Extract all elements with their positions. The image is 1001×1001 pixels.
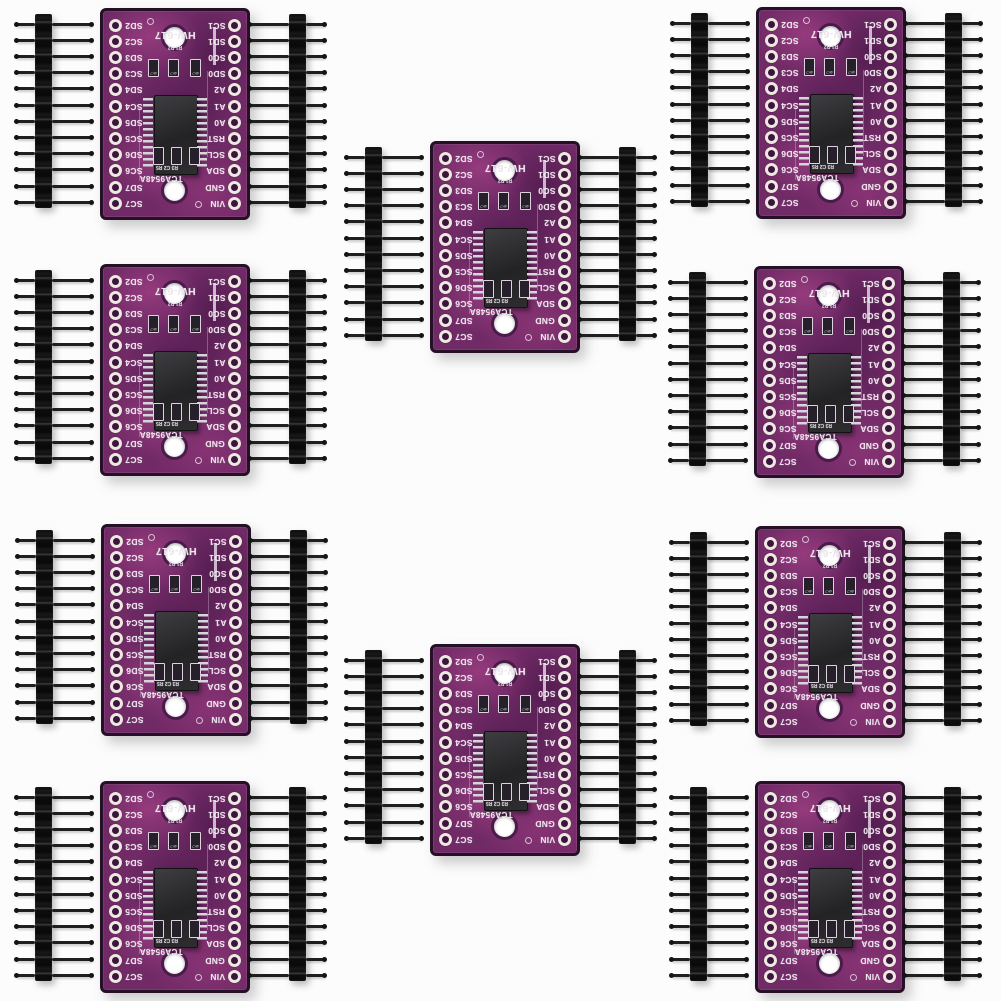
pin-label: GND <box>523 818 555 829</box>
header-pin <box>382 188 422 191</box>
header-pin <box>52 860 92 863</box>
header-pin <box>962 103 981 106</box>
through-hole-pad <box>228 339 241 352</box>
through-hole-pad <box>228 856 241 869</box>
pin-label-text: SD5 <box>126 633 143 644</box>
through-hole-pad <box>228 905 241 918</box>
header-pin <box>905 135 945 138</box>
pin-header-right <box>945 13 962 207</box>
pin-label: SD5 <box>455 753 487 764</box>
through-hole-pad <box>558 314 571 327</box>
through-hole-pad <box>229 713 242 726</box>
pin-label: GND <box>848 955 880 966</box>
pin-label: SD6 <box>780 667 812 678</box>
header-pin <box>579 659 619 662</box>
pin-label-text: SC7 <box>125 454 142 465</box>
pin-label: SC4 <box>126 617 158 628</box>
pin-label-text: SC2 <box>779 294 796 305</box>
pin-label-text: SC6 <box>126 681 143 692</box>
header-pin <box>17 652 36 655</box>
header-pin <box>962 22 981 25</box>
pin-label-text: RST <box>207 906 225 917</box>
pin-label: SD0 <box>848 586 880 597</box>
through-hole-pad <box>883 618 896 631</box>
passive-component <box>171 147 182 165</box>
through-hole-pad <box>883 970 896 983</box>
header-pin <box>250 652 290 655</box>
pin-label: SC7 <box>780 716 812 727</box>
pin-label: SC7 <box>125 971 157 982</box>
header-pin <box>707 686 747 689</box>
pin-label-text: SD2 <box>780 793 797 804</box>
header-pin <box>17 571 36 574</box>
header-pin <box>962 86 981 89</box>
through-hole-pad <box>884 180 897 193</box>
header-pin <box>962 184 981 187</box>
pin-label: SC3 <box>455 704 487 715</box>
pin-label: SC6 <box>125 165 157 176</box>
header-pin <box>249 408 289 411</box>
pin-label-text: SD5 <box>125 890 142 901</box>
through-hole-pad <box>763 341 776 354</box>
header-pin <box>16 392 35 395</box>
pin-label-text: RST <box>862 651 880 662</box>
pin-label: SD3 <box>455 688 487 699</box>
header-pin <box>708 38 748 41</box>
header-pin <box>670 329 689 332</box>
header-pin <box>962 167 981 170</box>
pin-label-text: SC4 <box>779 359 796 370</box>
pin-label-text: A1 <box>544 737 555 748</box>
pin-label: SC0 <box>847 310 879 321</box>
through-hole-pad <box>558 184 571 197</box>
header-pin <box>961 974 980 977</box>
pin-label: SD3 <box>455 185 487 196</box>
pin-label: A0 <box>523 250 555 261</box>
pin-label-text: SC7 <box>781 197 798 208</box>
pin-label: SD4 <box>455 217 487 228</box>
pin-label: SC6 <box>780 683 812 694</box>
pin-label-text: SCL <box>862 922 880 933</box>
pin-label-text: SDA <box>860 423 879 434</box>
through-hole-pad <box>763 293 776 306</box>
pin-label: SC7 <box>125 454 157 465</box>
pin-label: SCL <box>848 922 880 933</box>
header-pin <box>670 394 689 397</box>
pin-label-text: SD0 <box>863 586 880 597</box>
header-pin <box>961 622 980 625</box>
header-pin <box>579 156 619 159</box>
pin-label-text: SC1 <box>864 19 881 30</box>
pin-label: SD7 <box>780 955 812 966</box>
header-pin <box>249 152 289 155</box>
pin-label-text: SC1 <box>538 153 555 164</box>
through-hole-pad <box>882 390 895 403</box>
pin-label-text: SDA <box>206 938 225 949</box>
header-pin <box>636 772 655 775</box>
header-pin <box>903 459 943 462</box>
through-hole-pad <box>883 954 896 967</box>
through-hole-pad <box>110 632 123 645</box>
through-hole-pad <box>882 309 895 322</box>
header-pin <box>636 269 655 272</box>
pin-label: A2 <box>847 342 879 353</box>
pin-label-text: SD3 <box>780 570 797 581</box>
header-pin <box>671 844 690 847</box>
pin-label: SD2 <box>125 793 157 804</box>
pin-label: A0 <box>848 890 880 901</box>
header-pin <box>579 821 619 824</box>
through-hole-pad <box>439 168 452 181</box>
pin-label-text: VIN <box>865 971 880 982</box>
header-pin <box>53 571 93 574</box>
header-pin <box>708 103 748 106</box>
pin-label: SD1 <box>193 809 225 820</box>
pin-label: VIN <box>848 716 880 727</box>
pin-label: SD7 <box>125 182 157 193</box>
header-pin <box>17 620 36 623</box>
header-pin <box>346 804 365 807</box>
header-pin <box>52 87 92 90</box>
header-pin <box>706 459 746 462</box>
pin-label: SC7 <box>455 331 487 342</box>
header-pin <box>382 204 422 207</box>
through-hole-pad <box>765 180 778 193</box>
header-pin <box>53 684 93 687</box>
through-hole-pad <box>763 390 776 403</box>
header-pin <box>706 313 746 316</box>
tca9548a-breakout-board: HW-617 R1 R2 4K7 4K7 4K7 R3 C2 R5 TCA954… <box>430 141 580 353</box>
through-hole-pad <box>228 437 241 450</box>
header-pin <box>16 120 35 123</box>
through-hole-pad <box>883 889 896 902</box>
pin-label-text: A2 <box>869 602 880 613</box>
board-kit-group: HW-617 R1 R2 4K7 4K7 4K7 R3 C2 R5 TCA954… <box>101 524 245 730</box>
header-pin <box>306 958 325 961</box>
pin-label-text: SC7 <box>125 198 142 209</box>
pin-label-text: SD4 <box>455 217 472 228</box>
header-pin <box>249 877 289 880</box>
header-pin <box>16 812 35 815</box>
pin-label-text: SD3 <box>125 308 142 319</box>
pin-label-text: SC2 <box>126 552 143 563</box>
pin-label: SD4 <box>781 83 813 94</box>
pin-label-text: SC4 <box>125 874 142 885</box>
header-pin <box>961 719 980 722</box>
header-pin <box>960 443 979 446</box>
pin-label: SC7 <box>125 198 157 209</box>
pin-label: SD4 <box>780 857 812 868</box>
through-hole-pad <box>558 249 571 262</box>
header-pin <box>671 638 690 641</box>
through-hole-pad <box>558 233 571 246</box>
header-pin <box>579 188 619 191</box>
header-pin <box>16 441 35 444</box>
pin-label-text: VIN <box>211 714 226 725</box>
pin-label-text: A2 <box>215 600 226 611</box>
header-pin <box>306 925 325 928</box>
through-hole-pad <box>765 163 778 176</box>
pin-label: A2 <box>848 857 880 868</box>
tca9548a-breakout-board: HW-617 R1 R2 4K7 4K7 4K7 R3 C2 R5 TCA954… <box>101 524 251 736</box>
pin-label-text: SD6 <box>455 785 472 796</box>
header-pin <box>52 104 92 107</box>
through-hole-pad <box>764 856 777 869</box>
header-pin <box>52 376 92 379</box>
header-pin <box>706 394 746 397</box>
header-pin <box>904 958 944 961</box>
through-hole-pad <box>558 281 571 294</box>
through-hole-pad <box>439 152 452 165</box>
pin-label-text: SD2 <box>125 276 142 287</box>
header-pin <box>960 281 979 284</box>
pin-label: SD5 <box>780 890 812 901</box>
pin-label: SD5 <box>125 117 157 128</box>
tca9548a-breakout-board: HW-617 R1 R2 4K7 4K7 4K7 R3 C2 R5 TCA954… <box>754 266 904 478</box>
header-pin <box>52 311 92 314</box>
header-pin <box>249 39 289 42</box>
header-pin <box>671 622 690 625</box>
header-pin <box>670 345 689 348</box>
through-hole-pad <box>109 873 122 886</box>
header-pin <box>961 605 980 608</box>
header-pin <box>306 168 325 171</box>
through-hole-pad <box>228 954 241 967</box>
pin-label: SDA <box>523 801 555 812</box>
through-hole-pad <box>883 601 896 614</box>
pin-label: SD0 <box>848 841 880 852</box>
pin-label-text: SD2 <box>455 153 472 164</box>
pin-label-text: SCL <box>207 922 225 933</box>
header-pin <box>52 327 92 330</box>
header-pin <box>346 188 365 191</box>
through-hole-pad <box>558 671 571 684</box>
through-hole-pad <box>883 792 896 805</box>
through-hole-pad <box>109 372 122 385</box>
through-hole-pad <box>228 67 241 80</box>
pin-label: SC2 <box>780 554 812 565</box>
header-pin <box>346 220 365 223</box>
through-hole-pad <box>558 200 571 213</box>
pin-header-left <box>690 787 707 981</box>
pin-label: SD4 <box>780 602 812 613</box>
pin-label-text: A2 <box>544 720 555 731</box>
board-kit-group: HW-617 R1 R2 4K7 4K7 4K7 R3 C2 R5 TCA954… <box>100 264 244 470</box>
header-pin <box>672 86 691 89</box>
pin-label-text: SD7 <box>780 955 797 966</box>
pin-label: SC4 <box>125 874 157 885</box>
header-pin <box>52 941 92 944</box>
pin-label-text: SD7 <box>781 181 798 192</box>
header-pin <box>962 119 981 122</box>
pin-label-text: GND <box>205 182 225 193</box>
pin-label: GND <box>193 955 225 966</box>
header-pin <box>636 301 655 304</box>
through-hole-pad <box>110 680 123 693</box>
pin-label: SD2 <box>780 538 812 549</box>
header-pin <box>306 376 325 379</box>
header-pin <box>346 253 365 256</box>
through-hole-pad <box>109 67 122 80</box>
pin-label-text: SD4 <box>125 857 142 868</box>
pin-label-text: RST <box>537 769 555 780</box>
pin-label: SD2 <box>455 153 487 164</box>
header-pin <box>708 167 748 170</box>
through-hole-pad <box>883 937 896 950</box>
header-pin <box>306 23 325 26</box>
header-pin <box>671 909 690 912</box>
through-hole-pad <box>883 856 896 869</box>
pin-label: SC4 <box>125 101 157 112</box>
pin-label: A1 <box>848 874 880 885</box>
header-pin <box>708 184 748 187</box>
header-pin <box>671 812 690 815</box>
header-pin <box>671 654 690 657</box>
through-hole-pad <box>883 840 896 853</box>
pin-label-text: SD3 <box>780 825 797 836</box>
through-hole-pad <box>228 100 241 113</box>
pin-label: SD3 <box>780 825 812 836</box>
header-pin <box>706 362 746 365</box>
pin-label: A0 <box>849 116 881 127</box>
pin-label-text: SD2 <box>781 19 798 30</box>
header-pin <box>904 686 944 689</box>
pin-label-text: SD1 <box>862 294 879 305</box>
header-pin <box>707 654 747 657</box>
header-pin <box>960 459 979 462</box>
header-pin <box>17 684 36 687</box>
through-hole-pad <box>228 372 241 385</box>
through-hole-pad <box>765 115 778 128</box>
header-pin <box>904 719 944 722</box>
header-pin <box>306 136 325 139</box>
pin-label: SD0 <box>193 324 225 335</box>
pin-label: SD6 <box>125 405 157 416</box>
header-pin <box>903 345 943 348</box>
pin-label: SD3 <box>125 825 157 836</box>
pullup-resistor: 4K7 <box>168 59 179 77</box>
header-pin <box>52 136 92 139</box>
header-pin <box>670 313 689 316</box>
through-hole-pad <box>558 817 571 830</box>
pin-label-text: SD1 <box>208 809 225 820</box>
pin-label-text: SC5 <box>455 266 472 277</box>
pin-label-text: SDA <box>862 164 881 175</box>
through-hole-pad <box>558 655 571 668</box>
header-pin <box>249 392 289 395</box>
header-pin <box>903 362 943 365</box>
header-pin <box>579 253 619 256</box>
pin-label-text: SC0 <box>864 51 881 62</box>
pin-label: SCL <box>193 405 225 416</box>
header-pin <box>249 327 289 330</box>
through-hole-pad <box>883 921 896 934</box>
pullup-resistor: 4K7 <box>823 832 834 850</box>
pin-label: SDA <box>847 423 879 434</box>
header-pin <box>249 23 289 26</box>
header-pin <box>346 821 365 824</box>
through-hole-pad <box>110 616 123 629</box>
pin-label: SC4 <box>781 100 813 111</box>
header-pin <box>382 772 422 775</box>
pin-label: SC5 <box>780 651 812 662</box>
header-pin <box>904 909 944 912</box>
header-pin <box>904 974 944 977</box>
header-pin <box>307 620 326 623</box>
header-pin <box>307 571 326 574</box>
pin-label: A2 <box>848 602 880 613</box>
header-pin <box>579 675 619 678</box>
pin-label-text: SC4 <box>455 737 472 748</box>
pin-label-text: SCL <box>537 785 555 796</box>
header-pin <box>672 151 691 154</box>
pin-label: SC3 <box>125 324 157 335</box>
pin-label-text: SD6 <box>780 667 797 678</box>
pin-label-text: SC0 <box>863 570 880 581</box>
pin-label-text: SD3 <box>455 185 472 196</box>
header-pin <box>16 925 35 928</box>
pin-label-text: SD4 <box>455 720 472 731</box>
header-pin <box>307 668 326 671</box>
header-pin <box>52 39 92 42</box>
through-hole-pad <box>439 200 452 213</box>
pin-header-left <box>35 270 52 464</box>
through-hole-pad <box>109 356 122 369</box>
header-pin <box>707 638 747 641</box>
pin-label-text: SC5 <box>781 132 798 143</box>
header-pin <box>671 703 690 706</box>
pin-label: SD6 <box>126 665 158 676</box>
header-pin <box>52 796 92 799</box>
through-hole-pad <box>765 147 778 160</box>
pin-label: SC7 <box>781 197 813 208</box>
through-hole-pad <box>229 664 242 677</box>
pin-label-text: SD6 <box>126 665 143 676</box>
pin-label-text: A0 <box>869 890 880 901</box>
pullup-resistor: 4K7 <box>168 832 179 850</box>
through-hole-pad <box>883 569 896 582</box>
tca9548a-breakout-board: HW-617 R1 R2 4K7 4K7 4K7 R3 C2 R5 TCA954… <box>755 781 905 993</box>
through-hole-pad <box>884 82 897 95</box>
header-pin <box>707 828 747 831</box>
header-pin <box>52 909 92 912</box>
pin-label: SD7 <box>780 700 812 711</box>
pin-label-text: SC1 <box>863 538 880 549</box>
header-pin <box>307 684 326 687</box>
header-pin <box>707 605 747 608</box>
header-pin <box>16 168 35 171</box>
pin-header-left <box>691 13 708 207</box>
header-pin <box>708 86 748 89</box>
pin-label: SC5 <box>125 906 157 917</box>
header-pin <box>53 701 93 704</box>
header-pin <box>16 327 35 330</box>
header-pin <box>671 686 690 689</box>
pin-label: SC0 <box>523 688 555 699</box>
header-pin <box>579 285 619 288</box>
pin-label-text: VIN <box>210 198 225 209</box>
header-pin <box>346 237 365 240</box>
pin-header-left <box>365 650 382 844</box>
header-pin <box>16 796 35 799</box>
header-pin <box>249 87 289 90</box>
pin-label: A2 <box>193 857 225 868</box>
through-hole-pad <box>883 808 896 821</box>
header-pin <box>905 103 945 106</box>
pin-label-text: SD1 <box>863 809 880 820</box>
pin-label-text: SD6 <box>779 407 796 418</box>
header-pin <box>961 796 980 799</box>
